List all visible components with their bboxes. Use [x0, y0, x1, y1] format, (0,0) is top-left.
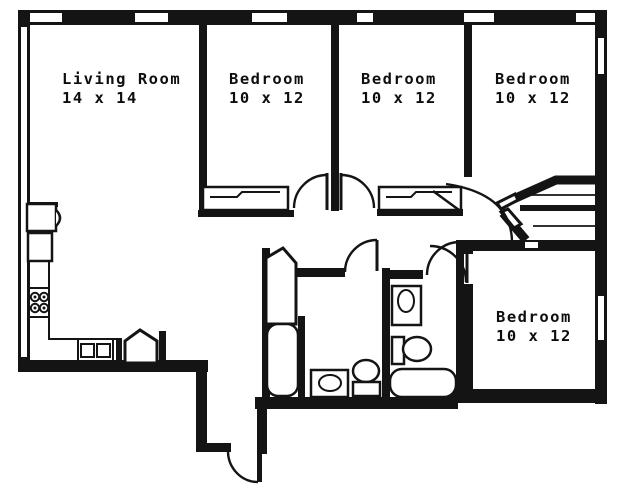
wall-kitchen-bottom: [18, 360, 208, 372]
bath1-door-swing: [345, 240, 377, 272]
wall-entry-left: [196, 368, 207, 450]
room-living-room: Living Room 14 x 14: [62, 70, 181, 107]
range-burners: [31, 293, 48, 312]
window-top-1: [30, 13, 62, 22]
wall-entry-step: [196, 443, 231, 452]
bedroom2-door-swing: [341, 175, 374, 208]
sink-basin-right: [97, 344, 110, 357]
pantry-angled-door: [125, 330, 157, 363]
entry-door-swing: [228, 451, 258, 482]
bedroom4-name: Bedroom: [496, 308, 572, 326]
wall-linen-middle: [520, 205, 597, 211]
wall-bath1-top: [295, 268, 345, 277]
floor-plan-svg: Living Room 14 x 14 Bedroom 10 x 12 Bedr…: [0, 0, 640, 493]
wall-bedroom1-bedroom2: [331, 25, 339, 211]
room-bedroom-2: Bedroom 10 x 12: [361, 70, 437, 107]
bedroom1-name: Bedroom: [229, 70, 305, 88]
wall-left-core: [21, 27, 27, 357]
pantry-jamb-left: [116, 340, 120, 363]
living-room-size: 14 x 14: [62, 89, 138, 107]
refrigerator-handle-bump: [56, 210, 60, 226]
wall-bedroom4-left: [464, 284, 473, 400]
window-right-2: [598, 296, 604, 340]
wall-entry-right: [257, 402, 267, 454]
floor-plan: Living Room 14 x 14 Bedroom 10 x 12 Bedr…: [0, 0, 640, 493]
bedroom2-closet: [379, 187, 461, 210]
wall-bathrooms-bottom: [255, 397, 458, 409]
bathtub-1: [267, 324, 298, 396]
window-top-2: [135, 13, 168, 22]
toilet-tank-1: [353, 382, 380, 396]
kitchen-appliance: [28, 233, 52, 261]
room-bedroom-4: Bedroom 10 x 12: [496, 308, 572, 345]
bathtub-2: [390, 369, 456, 397]
window-top-6: [576, 13, 598, 22]
bedroom1-door-swing: [294, 175, 327, 208]
kitchen-fixtures: [27, 202, 166, 363]
wall-bedroom3-bottom: [509, 180, 604, 201]
room-bedroom-3: Bedroom 10 x 12: [495, 70, 571, 107]
room-bedroom-1: Bedroom 10 x 12: [229, 70, 305, 107]
pantry-jamb-right: [159, 331, 166, 363]
window-top-3: [252, 13, 287, 22]
bathroom2-fixtures: [390, 286, 456, 397]
toilet-bowl-2: [403, 337, 431, 361]
living-room-name: Living Room: [62, 70, 181, 88]
entry-door-leaf: [257, 450, 262, 482]
sink-basin-left: [81, 344, 94, 357]
refrigerator: [27, 204, 56, 231]
bedroom2-name: Bedroom: [361, 70, 437, 88]
wall-top: [18, 10, 607, 25]
wall-bedroom4-top-gap: [525, 242, 538, 248]
toilet-bowl-1: [353, 360, 379, 382]
room-labels: Living Room 14 x 14 Bedroom 10 x 12 Bedr…: [62, 70, 572, 345]
bedroom1-closet: [203, 187, 288, 210]
wall-bedroom2-bedroom3: [464, 25, 472, 177]
window-right-1: [598, 38, 604, 74]
window-top-4: [357, 13, 373, 22]
vanity-2: [392, 286, 421, 325]
window-top-5: [464, 13, 494, 22]
bedroom4-size: 10 x 12: [496, 327, 572, 345]
bedroom1-size: 10 x 12: [229, 89, 305, 107]
bedroom3-size: 10 x 12: [495, 89, 571, 107]
bedroom2-size: 10 x 12: [361, 89, 437, 107]
wall-bath2-top: [382, 270, 423, 279]
bedroom3-name: Bedroom: [495, 70, 571, 88]
bath1-angled-closet-door: [266, 248, 296, 324]
